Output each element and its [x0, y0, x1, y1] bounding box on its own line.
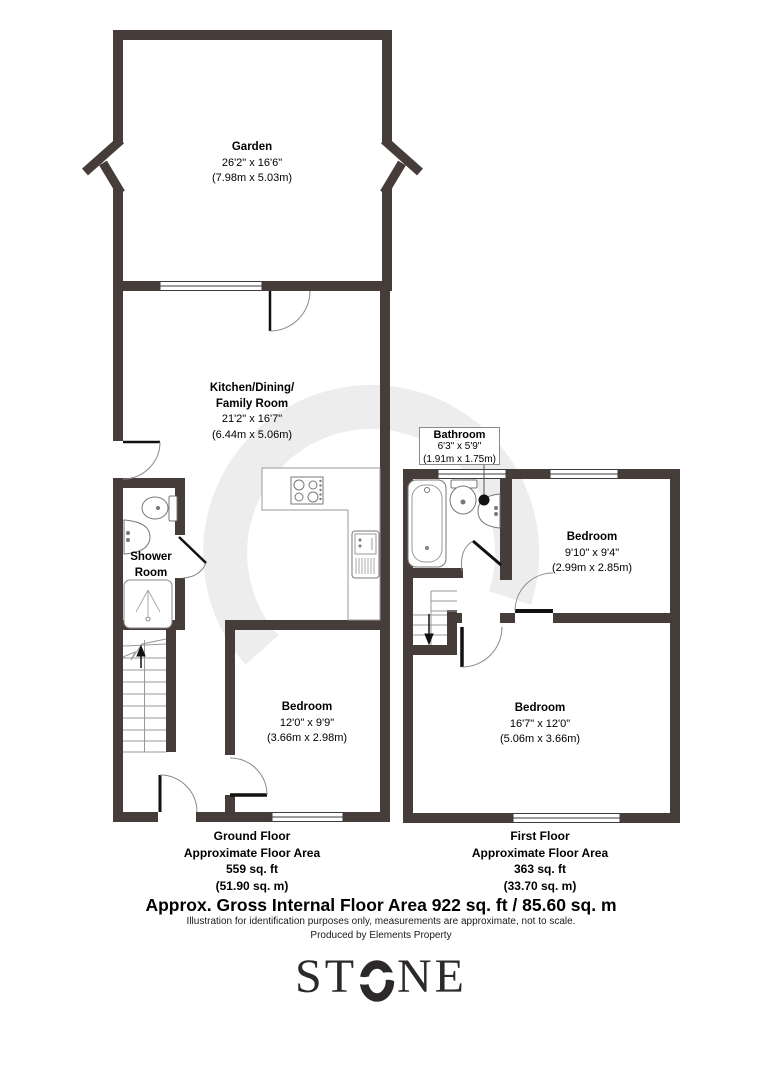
stone-logo: ST NE [295, 948, 467, 1006]
first-small-bedroom-label: Bedroom 9'10" x 9'4" (2.99m x 2.85m) [552, 530, 632, 577]
gross-internal-area-text: Approx. Gross Internal Floor Area 922 sq… [145, 895, 616, 916]
bathroom-window-icon [438, 470, 506, 479]
kitchen-window-icon [160, 282, 262, 291]
first-large-bedroom-label: Bedroom 16'7" x 12'0" (5.06m x 3.66m) [500, 701, 580, 748]
ground-bedroom-door-icon [230, 758, 267, 795]
first-floor-area-block: First Floor Approximate Floor Area 363 s… [472, 828, 608, 894]
appliance-icon [352, 531, 379, 578]
shower-tray-icon [124, 580, 172, 628]
floor-area-m: (33.70 sq. m) [472, 878, 608, 895]
room-size-imperial: 21'2" x 16'7" [210, 412, 294, 428]
floor-area-caption: Approximate Floor Area [184, 845, 320, 862]
toilet-icon [450, 480, 477, 514]
room-name: Kitchen/Dining/ [210, 381, 294, 397]
floor-label: First Floor [472, 828, 608, 845]
room-size-metric: (3.66m x 2.98m) [267, 731, 347, 747]
floor-label: Ground Floor [184, 828, 320, 845]
stone-logo-o-icon [358, 955, 396, 1005]
kitchen-counter-icon [262, 468, 380, 620]
sink-icon [124, 520, 150, 554]
ground-floor-area-block: Ground Floor Approximate Floor Area 559 … [184, 828, 320, 894]
room-name: Garden [212, 140, 292, 156]
floor-area-ft: 363 sq. ft [472, 861, 608, 878]
room-name: Family Room [210, 397, 294, 413]
bathtub-icon [408, 480, 446, 567]
kitchen-label: Kitchen/Dining/ Family Room 21'2" x 16'7… [210, 381, 294, 443]
room-name: Shower [130, 550, 172, 566]
ground-bedroom-label: Bedroom 12'0" x 9'9" (3.66m x 2.98m) [267, 700, 347, 747]
ground-bedroom-window-icon [272, 813, 343, 822]
kitchen-side-door-icon [123, 442, 160, 479]
room-name: Bedroom [500, 701, 580, 717]
room-size-imperial: 16'7" x 12'0" [500, 717, 580, 733]
room-size-imperial: 9'10" x 9'4" [552, 546, 632, 562]
room-size-metric: (7.98m x 5.03m) [212, 171, 292, 187]
front-door-icon [160, 775, 197, 812]
room-size-imperial: 6'3" x 5'9" [420, 441, 499, 453]
room-size-metric: (1.91m x 1.75m) [420, 454, 499, 466]
stone-logo-text-left: ST [295, 948, 357, 1006]
disclaimer-text: Illustration for identification purposes… [187, 916, 576, 927]
floor-area-caption: Approximate Floor Area [472, 845, 608, 862]
ground-floor-stairs-icon [123, 639, 166, 752]
bathroom-label-box: Bathroom 6'3" x 5'9" (1.91m x 1.75m) [419, 427, 500, 465]
producer-credit-text: Produced by Elements Property [310, 930, 451, 941]
toilet-icon [142, 496, 177, 521]
large-bedroom-door-icon [462, 627, 502, 667]
garden-label: Garden 26'2" x 16'6" (7.98m x 5.03m) [212, 140, 292, 187]
room-name: Bedroom [267, 700, 347, 716]
large-bedroom-window-icon [513, 814, 620, 823]
kitchen-garden-door-icon [270, 291, 310, 331]
shower-room-label: Shower Room [130, 550, 172, 581]
room-size-metric: (5.06m x 3.66m) [500, 732, 580, 748]
room-name: Room [130, 566, 172, 582]
room-name: Bedroom [552, 530, 632, 546]
room-name: Bathroom [420, 429, 499, 441]
stone-logo-text-right: NE [397, 948, 467, 1006]
floor-area-m: (51.90 sq. m) [184, 878, 320, 895]
room-size-imperial: 26'2" x 16'6" [212, 156, 292, 172]
floor-area-ft: 559 sq. ft [184, 861, 320, 878]
floorplan-page: Garden 26'2" x 16'6" (7.98m x 5.03m) Kit… [0, 0, 763, 1080]
room-size-imperial: 12'0" x 9'9" [267, 716, 347, 732]
small-bedroom-window-icon [550, 470, 618, 479]
shower-room-door-icon [179, 537, 206, 578]
room-size-metric: (6.44m x 5.06m) [210, 428, 294, 444]
room-size-metric: (2.99m x 2.85m) [552, 561, 632, 577]
